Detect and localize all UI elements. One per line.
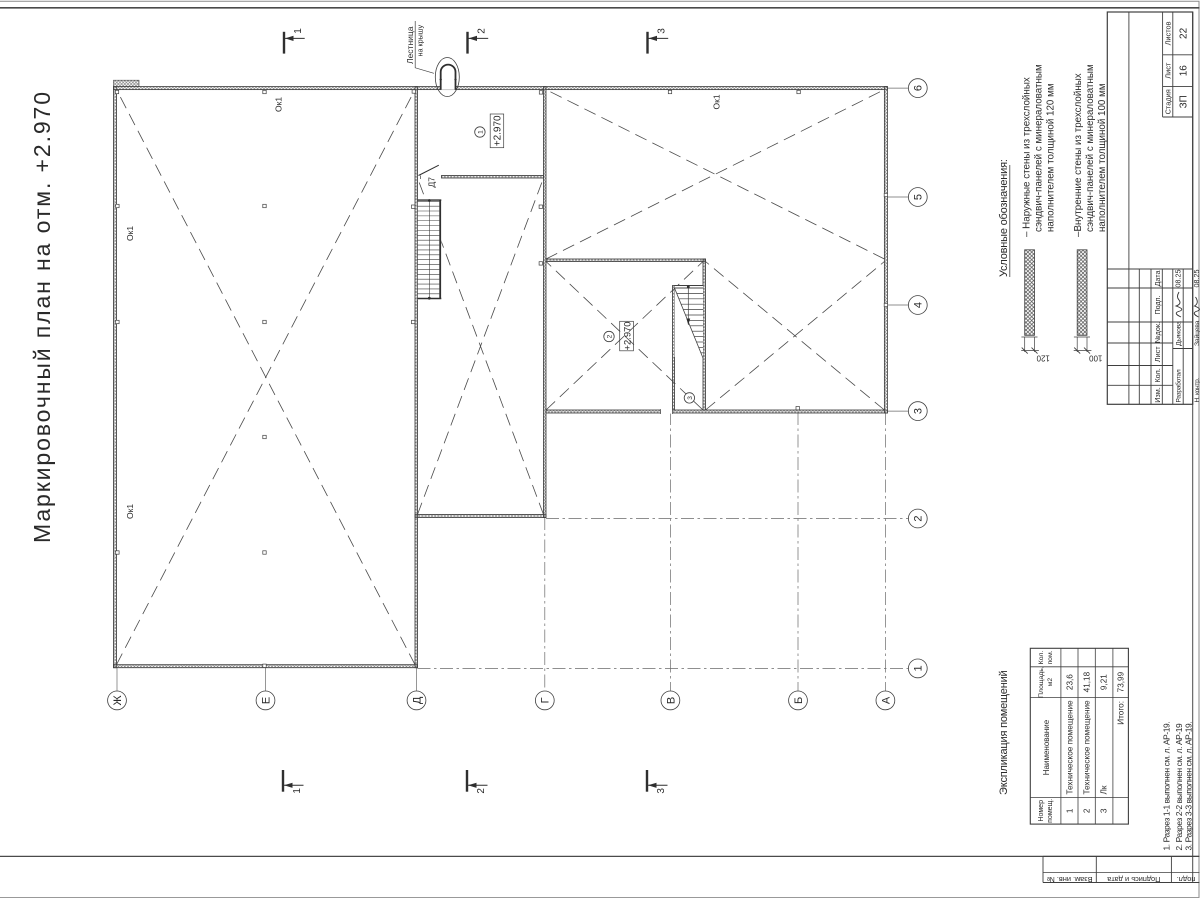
- svg-text:9,21: 9,21: [1100, 674, 1109, 690]
- svg-text:Экспликация помещений: Экспликация помещений: [998, 670, 1010, 795]
- svg-text:сэндвич-панелей с минераловатн: сэндвич-панелей с минераловатным: [1085, 64, 1096, 232]
- svg-text:Д: Д: [411, 696, 423, 704]
- svg-text:Условные обозначения:: Условные обозначения:: [998, 159, 1010, 277]
- svg-text:3. Разрез 3-3 выполнен см. л.: 3. Разрез 3-3 выполнен см. л. АР-19.: [1183, 722, 1193, 851]
- svg-text:1: 1: [293, 28, 304, 34]
- svg-text:+2.970: +2.970: [621, 322, 632, 351]
- svg-text:Подпись и дата: Подпись и дата: [1106, 875, 1160, 884]
- svg-text:41,18: 41,18: [1083, 671, 1092, 692]
- svg-text:сэндвич-панелей с минераловатн: сэндвич-панелей с минераловатным: [1034, 64, 1045, 232]
- svg-text:3: 3: [657, 28, 668, 34]
- svg-text:ЗП: ЗП: [1179, 95, 1190, 108]
- svg-text:Изм.: Изм.: [1153, 387, 1162, 402]
- svg-text:Лист: Лист: [1163, 62, 1172, 79]
- svg-text:16: 16: [1179, 65, 1190, 77]
- svg-text:Стадия: Стадия: [1163, 89, 1172, 114]
- svg-text:2: 2: [1083, 808, 1092, 813]
- svg-text:Наименование: Наименование: [1042, 719, 1051, 775]
- svg-text:100: 100: [1089, 354, 1103, 363]
- svg-text:Дьякова: Дьякова: [1176, 321, 1183, 346]
- svg-text:Ж: Ж: [112, 695, 124, 705]
- svg-text:Листов: Листов: [1163, 21, 1172, 45]
- svg-text:Кол.: Кол.: [1153, 368, 1162, 382]
- svg-text:08.25: 08.25: [1192, 270, 1200, 288]
- svg-text:1. Разрез 1-1 выполнен см. л.: 1. Разрез 1-1 выполнен см. л. АР-19.: [1162, 722, 1172, 851]
- svg-text:3: 3: [656, 788, 667, 794]
- svg-text:2: 2: [606, 334, 613, 338]
- svg-text:Е: Е: [260, 697, 272, 704]
- svg-text:3: 3: [913, 408, 925, 414]
- svg-text:22: 22: [1179, 27, 1190, 39]
- svg-text:3: 3: [1100, 808, 1109, 813]
- svg-text:Лк: Лк: [1100, 785, 1109, 794]
- svg-text:3: 3: [687, 396, 694, 400]
- svg-text:+2.970: +2.970: [493, 115, 504, 146]
- svg-text:пом.: пом.: [1047, 650, 1054, 664]
- svg-text:Площадь,: Площадь,: [1038, 666, 1045, 698]
- svg-text:Кол.: Кол.: [1038, 651, 1045, 665]
- svg-text:Ок1: Ок1: [712, 94, 722, 109]
- svg-text:м2: м2: [1047, 678, 1054, 687]
- svg-text:–Внутренние стены из трехслойн: –Внутренние стены из трехслойных: [1073, 73, 1084, 237]
- svg-text:08.25: 08.25: [1174, 270, 1183, 288]
- svg-text:4: 4: [913, 302, 925, 308]
- svg-text:Взам. инв. №: Взам. инв. №: [1047, 875, 1093, 884]
- svg-text:Лестница: Лестница: [405, 26, 415, 64]
- svg-text:Ок1: Ок1: [274, 97, 284, 112]
- svg-text:1: 1: [477, 130, 484, 134]
- svg-text:Маркировочный план на отм. +2.: Маркировочный план на отм. +2.970: [29, 90, 55, 543]
- svg-text:5: 5: [913, 194, 925, 200]
- svg-text:наполнителем толщиной 120 мм: наполнителем толщиной 120 мм: [1046, 83, 1057, 232]
- svg-text:Номер: Номер: [1038, 800, 1045, 822]
- svg-text:на крышу: на крышу: [415, 24, 424, 56]
- svg-text:120: 120: [1036, 354, 1050, 363]
- svg-text:– Наружные стены из трехслойны: – Наружные стены из трехслойных: [1022, 77, 1033, 237]
- svg-text:1: 1: [292, 788, 303, 794]
- svg-text:Зайцева: Зайцева: [1193, 320, 1200, 346]
- svg-text:№док.: №док.: [1153, 322, 1162, 343]
- svg-text:наполнителем толщиной 100 мм: наполнителем толщиной 100 мм: [1097, 83, 1108, 232]
- svg-text:А: А: [880, 696, 892, 704]
- svg-text:подл.: подл.: [1177, 875, 1196, 884]
- svg-text:Д7: Д7: [427, 177, 437, 188]
- svg-text:Техническое помещение: Техническое помещение: [1083, 700, 1092, 795]
- svg-text:Подп.: Подп.: [1153, 295, 1162, 314]
- svg-text:2: 2: [477, 28, 488, 34]
- svg-text:Дата: Дата: [1153, 271, 1162, 287]
- svg-text:помещ.: помещ.: [1047, 799, 1054, 823]
- svg-text:Итого:: Итого:: [1117, 701, 1126, 725]
- svg-text:Лист: Лист: [1153, 346, 1162, 362]
- svg-text:Ок1: Ок1: [125, 504, 135, 519]
- svg-text:23,6: 23,6: [1066, 674, 1075, 690]
- svg-text:Ок1: Ок1: [125, 226, 135, 241]
- svg-text:В: В: [665, 697, 677, 704]
- svg-text:1: 1: [1066, 808, 1075, 813]
- svg-text:2: 2: [913, 515, 925, 521]
- svg-text:Техническое помещение: Техническое помещение: [1066, 700, 1075, 795]
- svg-text:6: 6: [913, 85, 925, 91]
- svg-text:Разработал: Разработал: [1175, 369, 1183, 402]
- svg-text:2: 2: [476, 788, 487, 794]
- svg-text:Н. контр.: Н. контр.: [1194, 378, 1200, 403]
- svg-text:1: 1: [913, 665, 925, 671]
- svg-text:73,99: 73,99: [1117, 671, 1126, 692]
- svg-text:Б: Б: [793, 697, 805, 704]
- svg-text:Г: Г: [540, 697, 552, 703]
